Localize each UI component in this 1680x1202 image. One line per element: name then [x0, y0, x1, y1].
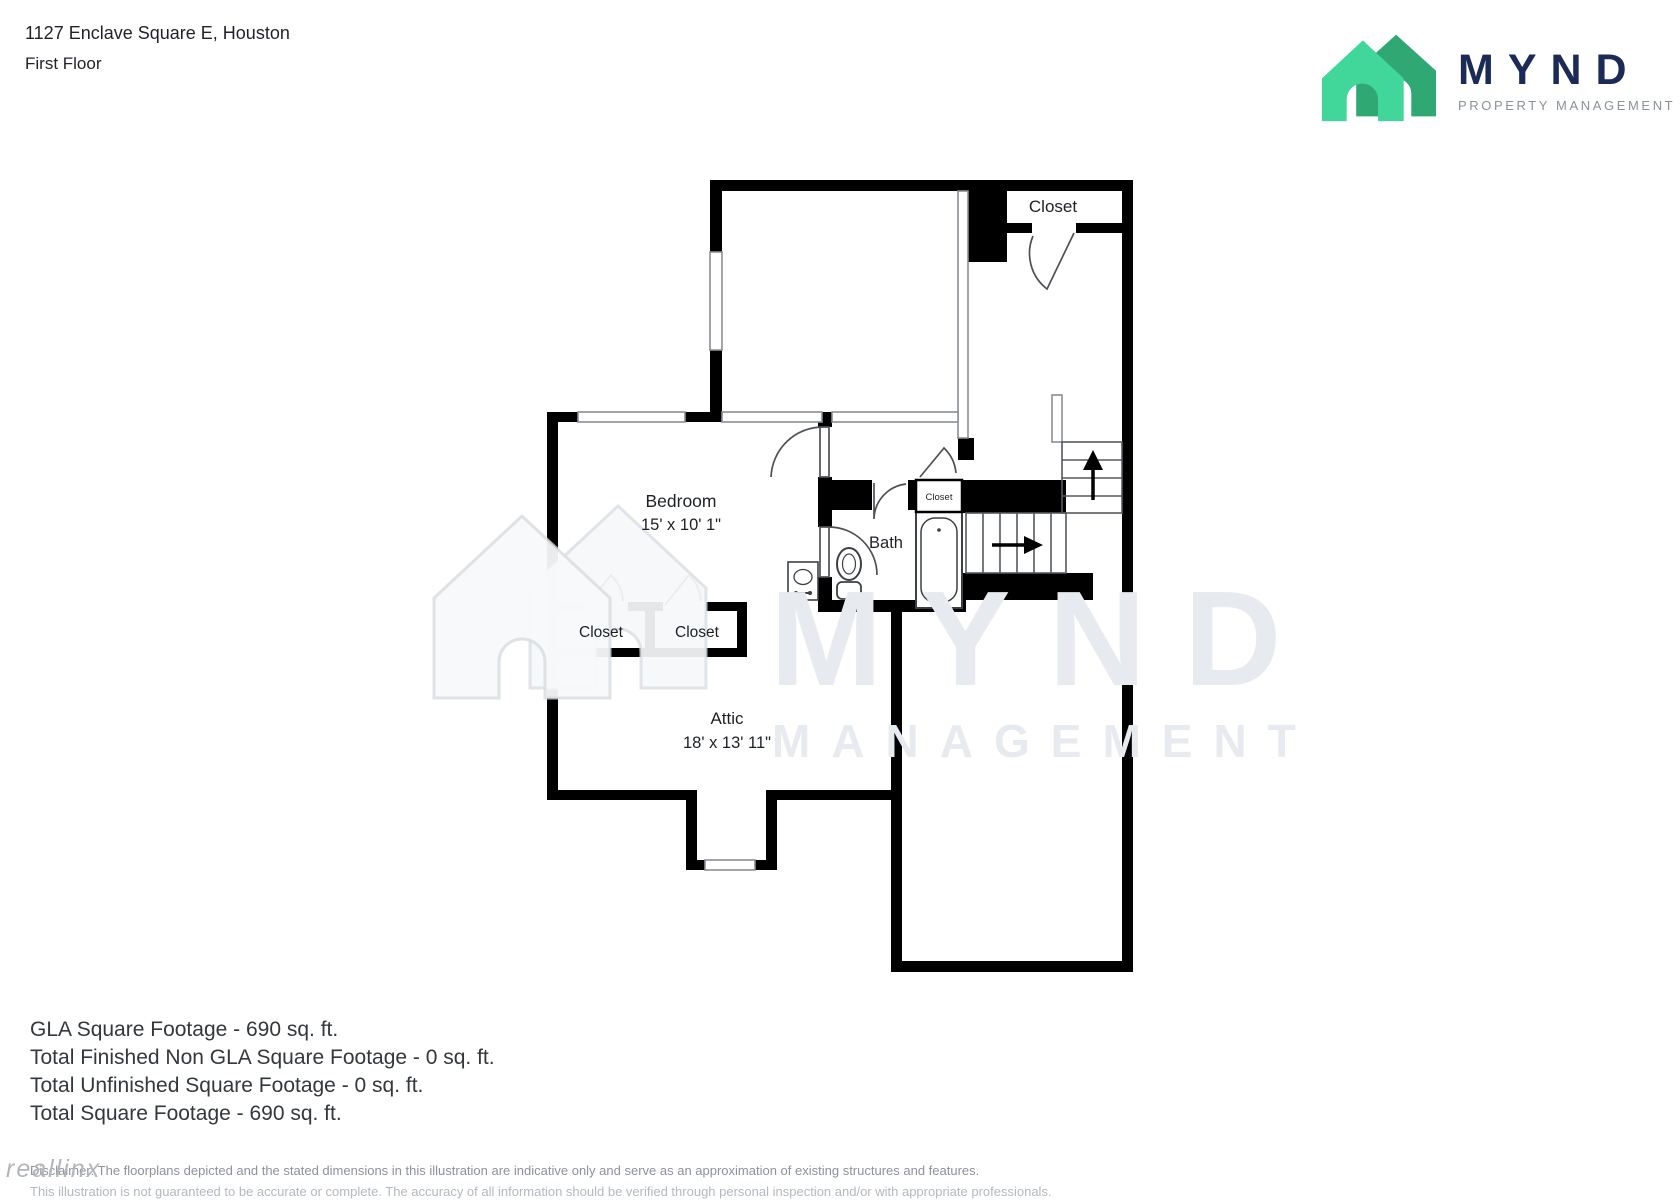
disclaimer-line-1: Disclaimer: The floorplans depicted and …	[30, 1160, 1650, 1181]
stair-stringer-line	[1052, 395, 1062, 442]
label-bath: Bath	[869, 534, 903, 552]
label-bath-closet: Closet	[926, 492, 953, 503]
label-closet-top-right: Closet	[1029, 197, 1077, 216]
label-attic-dims: 18' x 13' 11"	[683, 734, 771, 752]
window-attic-bay	[705, 860, 755, 870]
label-attic: Attic	[710, 709, 744, 728]
gla-square-footage: GLA Square Footage - 690 sq. ft.	[30, 1016, 495, 1044]
floorplan-page: 1127 Enclave Square E, Houston First Flo…	[0, 0, 1680, 1188]
total-square-footage: Total Square Footage - 690 sq. ft.	[30, 1100, 495, 1128]
label-closet-left: Closet	[579, 624, 624, 641]
window-top-room-right	[958, 191, 968, 438]
stair-direction-arrow-up	[1083, 450, 1103, 500]
label-closet-right: Closet	[675, 624, 720, 641]
finished-non-gla-square-footage: Total Finished Non GLA Square Footage - …	[30, 1044, 495, 1072]
window-hall-top	[832, 412, 958, 422]
window-bedroom-top	[578, 412, 685, 422]
disclaimer: Disclaimer: The floorplans depicted and …	[30, 1160, 1650, 1202]
window-top-room-left	[710, 252, 722, 350]
door-bedroom	[771, 427, 823, 477]
disclaimer-line-2: This illustration is not guaranteed to b…	[30, 1181, 1650, 1202]
watermark-houses-icon	[434, 506, 706, 698]
label-bedroom: Bedroom	[645, 491, 716, 511]
door-bath-closet	[920, 448, 956, 477]
square-footage-summary: GLA Square Footage - 690 sq. ft. Total F…	[30, 1016, 495, 1128]
door-bath-top	[874, 483, 906, 519]
label-bedroom-dims: 15' x 10' 1"	[641, 516, 721, 534]
unfinished-square-footage: Total Unfinished Square Footage - 0 sq. …	[30, 1072, 495, 1100]
door-closet-top-right	[1030, 233, 1074, 289]
watermark-line2: MANAGEMENT	[772, 715, 1317, 767]
watermark-line1: MYND	[770, 563, 1320, 714]
floorplan-drawing: MYND MANAGEMENT Closet Bedroom 15' x 10'…	[0, 0, 1680, 1188]
vendor-watermark: reallinx	[6, 1155, 101, 1184]
window-bedroom-top-2	[722, 412, 822, 422]
